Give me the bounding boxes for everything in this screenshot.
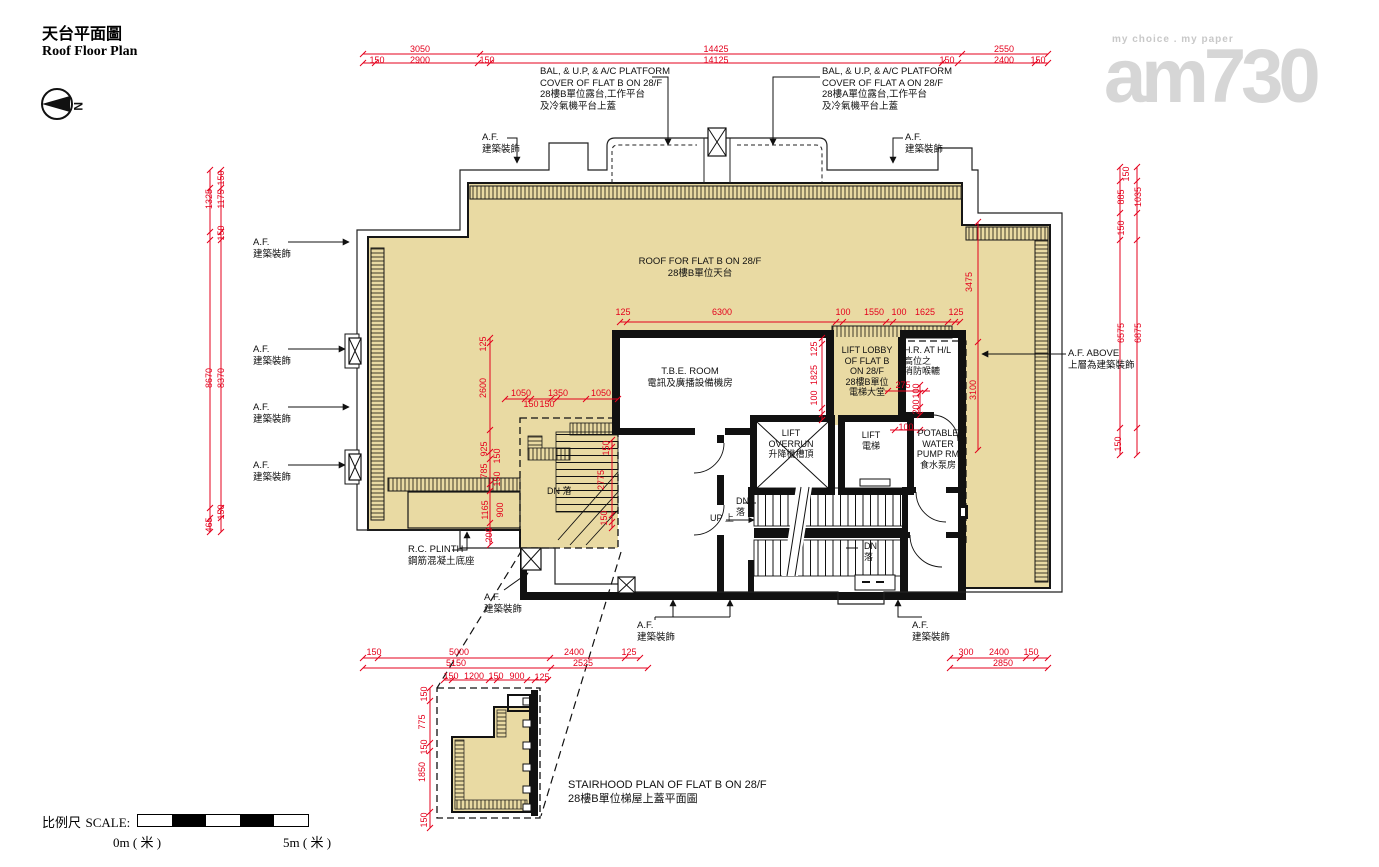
scale-label-zh: 比例尺 [42,815,81,830]
scale-label-en: SCALE: [85,815,130,830]
annotation-label: LIFTOVERRUN升降機槽頂 [768,428,813,460]
annotation-label: A.F.建築裝飾 [253,402,291,425]
dimension-label: 3475 [964,272,974,292]
dimension-label: 125 [615,307,630,317]
dimension-label: 1350 [548,388,568,398]
scale-five: 5m ( 米 ) [283,832,331,851]
dimension-label: 1625 [915,307,935,317]
annotation-label: DN落 [736,496,749,517]
annotation-label: STAIRHOOD PLAN OF FLAT B ON 28/F28樓B單位梯屋… [568,778,767,806]
dimension-label: 1325 [204,189,214,209]
dimension-label: 125 [948,307,963,317]
title-en: Roof Floor Plan [42,44,137,60]
dimension-label: 2850 [993,658,1013,668]
dimension-label: 200 [484,527,494,542]
page-title: 天台平面圖 Roof Floor Plan [42,20,137,60]
dimension-label: 2775 [596,470,606,490]
dimension-label: 300 [958,647,973,657]
annotation-label: BAL, & U.P, & A/C PLATFORMCOVER OF FLAT … [822,66,952,112]
annotation-label: DN 落 [547,486,572,497]
dimension-label: 150 [492,471,502,486]
annotation-label: UP 上 [710,513,734,524]
annotation-label: DN落 [864,541,877,562]
dimension-label: 900 [509,671,524,681]
dimension-label: 150 [1113,436,1123,451]
dimension-label: 1825 [809,365,819,385]
dimension-label: 150 [1030,55,1045,65]
dimension-label: 150 [419,739,429,754]
annotation-label: A.F.建築裝飾 [905,132,943,155]
annotation-label: LIFT LOBBYOF FLAT BON 28/F28樓B單位電梯大堂 [842,345,893,398]
annotation-label: A.F.建築裝飾 [484,592,522,615]
dimension-label: 150 [419,686,429,701]
dimension-label: 150 [216,225,226,240]
dimension-label: 14425 [703,44,728,54]
am730-logo: my choice . my paper am730 [1104,34,1316,109]
dimension-label: 2400 [564,647,584,657]
dimension-label: 100 [835,307,850,317]
dimension-label: 1165 [480,500,490,519]
dimension-label: 465 [204,517,214,532]
north-arrow: N [42,89,85,119]
annotation-label: A.F.建築裝飾 [253,344,291,367]
dimension-label: 1050 [511,388,531,398]
dimension-label: 275 [895,380,910,390]
dimension-label: 150 [539,399,554,409]
annotation-label: A.F.建築裝飾 [482,132,520,155]
dimension-label: 775 [417,714,427,729]
annotation-label: R.C. PLINTH鋼筋混凝土底座 [408,544,475,567]
dimension-label: 6575 [1116,323,1126,343]
dimension-label: 150 [1116,220,1126,235]
dimension-label: 2600 [478,378,488,398]
dimension-label: 1200 [464,671,484,681]
dimension-label: 125 [478,336,488,351]
scale-zero: 0m ( 米 ) [113,832,161,851]
dimension-label: 6300 [712,307,732,317]
dimension-label: 125 [621,647,636,657]
dimension-label: 14125 [703,55,728,65]
dimension-label: 150 [939,55,954,65]
scale-bar-graphic [137,814,309,827]
floor-plan-drawing: N [0,0,1379,867]
dimension-label: 2900 [410,55,430,65]
dimension-label: 785 [479,463,489,478]
dimension-label: 150 [369,55,384,65]
annotation-label: A.F.建築裝飾 [253,237,291,260]
dimension-label: 100 [809,390,819,405]
annotation-label: A.F.建築裝飾 [637,620,675,643]
dimension-label: 150 [1121,166,1131,181]
dimension-label: 2400 [989,647,1009,657]
annotation-label: LIFT電梯 [862,430,881,451]
roof-area [368,183,1050,604]
title-zh: 天台平面圖 [42,20,137,44]
dimension-label: 150 [419,812,429,827]
dimension-label: 150 [488,671,503,681]
dimension-label: 2400 [994,55,1014,65]
dimension-label: 150 [601,440,611,455]
annotation-label: A.F. ABOVE上層為建築裝飾 [1068,348,1135,371]
dimension-label: 6875 [1133,323,1143,343]
dimension-label: 885 [1116,189,1126,204]
stairhood-plan-detail [437,688,540,818]
dimension-label: 125 [534,672,549,682]
dimension-label: 150 [523,399,538,409]
dimension-label: 125 [809,341,819,356]
north-label: N [71,102,85,111]
dimension-label: 150 [216,504,226,519]
dimension-label: 5150 [446,658,466,668]
dimension-label: 1850 [417,762,427,782]
dimension-label: 150 [492,448,502,463]
dimension-label: 200 [911,399,921,414]
dimension-label: 150 [479,55,494,65]
dimension-label: 100 [891,307,906,317]
dimension-label: 100 [898,422,913,432]
dimension-label: 150 [1023,647,1038,657]
dimension-label: 1050 [591,388,611,398]
dimension-label: 8670 [204,368,214,388]
dimension-label: 150 [443,671,458,681]
dimension-label: 1175 [216,189,226,208]
dimension-label: 1550 [864,307,884,317]
dimension-label: 2550 [994,44,1014,54]
annotation-label: A.F.建築裝飾 [253,460,291,483]
scale-bar: 比例尺 SCALE: 0m ( 米 ) 5m ( 米 ) [42,812,130,832]
dimension-label: 925 [479,441,489,456]
dimension-label: 150 [216,170,226,185]
dimension-label: 900 [495,502,505,517]
annotation-label: POTABLEWATERPUMP RM食水泵房 [917,428,959,470]
dimension-label: 150 [366,647,381,657]
dimension-label: 5000 [449,647,469,657]
dimension-label: 100 [911,383,921,398]
dimension-label: 3050 [410,44,430,54]
dimension-label: 2525 [573,658,593,668]
annotation-label: T.B.E. ROOM電訊及廣播設備機房 [647,366,733,389]
dimension-label: 150 [599,510,609,525]
annotation-label: ROOF FOR FLAT B ON 28/F28樓B單位天台 [639,256,762,279]
dimension-label: 8370 [216,368,226,388]
annotation-label: BAL, & U.P, & A/C PLATFORMCOVER OF FLAT … [540,66,670,112]
dimension-label: 1035 [1133,187,1143,207]
annotation-label: A.F.建築裝飾 [912,620,950,643]
dimension-label: 3100 [968,380,978,400]
roof-floor-plan-page: N 天台平面圖 Roof Floor Plan my choice . my p… [0,0,1379,867]
logo-text: am730 [1104,45,1316,109]
annotation-label: H.R. AT H/L高位之消防喉轆 [904,345,951,377]
